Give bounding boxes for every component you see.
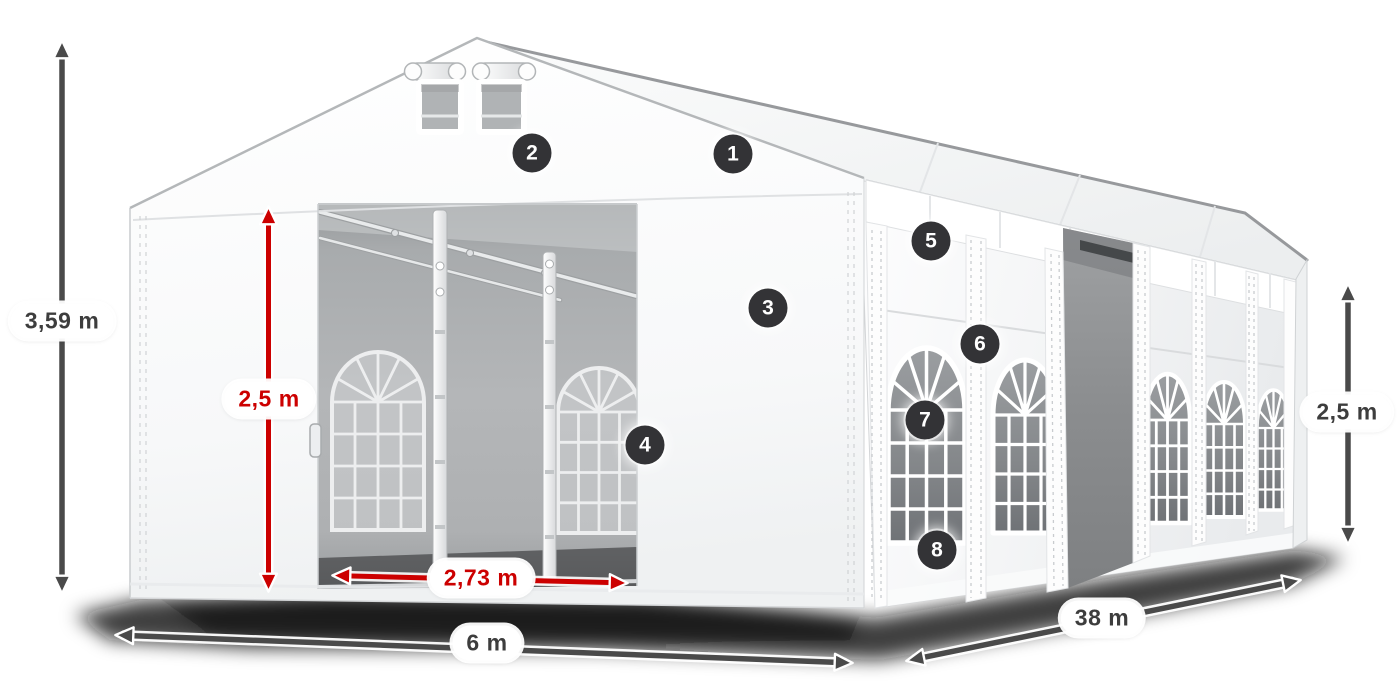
callout-marker-1[interactable]: 1 [714,135,753,174]
vent-roll [473,63,536,80]
door-pole [543,252,556,584]
side-door-opening [1063,228,1138,588]
callout-marker-7[interactable]: 7 [906,401,945,440]
callout-marker-3[interactable]: 3 [749,289,788,328]
side-window [1145,374,1190,523]
gable-vent-window [419,82,461,132]
dimension-label-entrance-height: 2,5 m [224,382,313,417]
gable-vent-window [479,82,524,132]
dimension-label-length: 38 m [1061,601,1143,636]
callout-marker-4[interactable]: 4 [626,426,665,465]
dimension-label-front-width: 6 m [452,626,521,661]
door-pole [433,210,447,586]
interior-window [332,352,424,530]
tent-illustration [0,0,1400,700]
door-handle [310,424,321,457]
dimension-label-side-height: 2,5 m [1302,395,1391,430]
entrance-interior [318,204,640,589]
tent-dimension-diagram: 1 2 3 4 5 6 7 8 3,59 m 2,5 m 2,73 m 6 m … [0,0,1400,700]
side-window [1203,382,1245,517]
dimension-label-entrance-width: 2,73 m [430,561,533,596]
callout-marker-8[interactable]: 8 [918,531,957,570]
callout-marker-5[interactable]: 5 [912,222,951,261]
dimension-label-total-height: 3,59 m [11,304,114,339]
callout-marker-6[interactable]: 6 [961,325,1000,364]
callout-marker-2[interactable]: 2 [513,134,552,173]
vent-roll [405,63,466,80]
side-window [888,348,965,543]
